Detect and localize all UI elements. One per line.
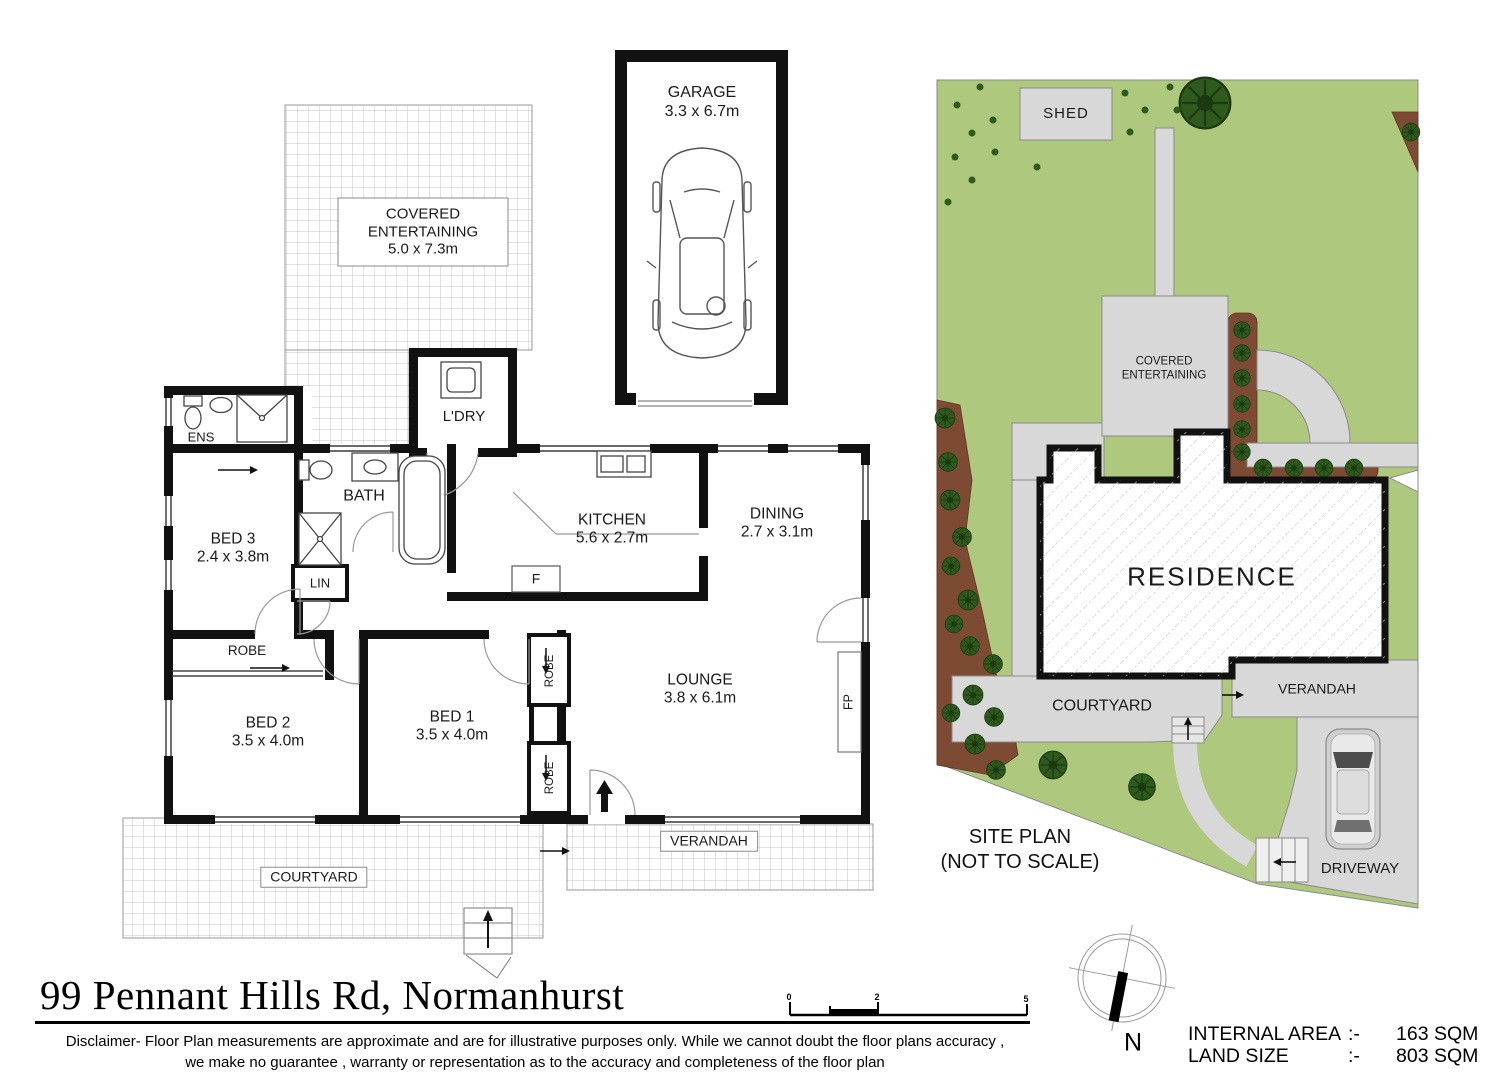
toilet-icon <box>299 460 332 480</box>
scale-tick-2: 2 <box>874 992 879 1002</box>
covered-entertaining-label: COVERED ENTERTAINING 5.0 x 7.3m <box>341 205 506 258</box>
scale-tick-0: 0 <box>786 992 791 1002</box>
lin-label: LIN <box>310 575 330 590</box>
site-residence-label: RESIDENCE <box>1127 562 1297 593</box>
verandah-label: VERANDAH <box>660 831 758 852</box>
garage-label: GARAGE 3.3 x 6.7m <box>665 84 740 122</box>
courtyard-label: COURTYARD <box>260 867 367 888</box>
internal-area-label: INTERNAL AREA <box>1188 1023 1348 1045</box>
kitchen-sink-icon <box>597 451 651 477</box>
bath-label: BATH <box>343 488 384 507</box>
laundry-tub-icon <box>441 362 481 398</box>
site-courtyard-label: COURTYARD <box>1052 698 1152 717</box>
car-icon <box>1326 729 1380 849</box>
steps-icon <box>464 908 512 978</box>
scale-tick-5: 5 <box>1023 994 1028 1004</box>
land-size-sep: :- <box>1348 1045 1396 1067</box>
site-shed-label: SHED <box>1043 105 1089 123</box>
site-verandah-label: VERANDAH <box>1278 681 1356 698</box>
bed1-label: BED 13.5 x 4.0m <box>416 709 488 746</box>
land-size-label: LAND SIZE <box>1188 1045 1348 1067</box>
page-title: 99 Pennant Hills Rd, Normanhurst <box>40 971 624 1019</box>
lounge-label: LOUNGE3.8 x 6.1m <box>664 672 736 709</box>
site-plan-caption: SITE PLAN (NOT TO SCALE) <box>941 825 1100 875</box>
vanity-icon <box>352 453 398 481</box>
scale-bar <box>790 1002 1027 1015</box>
compass-icon <box>1059 915 1186 1042</box>
fireplace-label: FP <box>842 694 857 710</box>
floorplan-page: GARAGE 3.3 x 6.7m COVERED ENTERTAINING 5… <box>0 0 1500 1082</box>
dining-label: DINING2.7 x 3.1m <box>741 506 813 543</box>
robe-bed1-top-label: ROBE <box>544 655 558 688</box>
shower-icon <box>237 395 287 442</box>
disclaimer: Disclaimer- Floor Plan measurements are … <box>35 1031 1035 1073</box>
bathtub-icon <box>399 456 445 564</box>
kitchen-label: KITCHEN5.6 x 2.7m <box>576 512 648 549</box>
site-driveway-label: DRIVEWAY <box>1321 860 1399 878</box>
title-rule <box>35 1021 1030 1024</box>
basin-icon <box>210 398 232 413</box>
fridge-label: F <box>532 571 541 588</box>
bed3-label: BED 32.4 x 3.8m <box>197 531 269 568</box>
compass-north-label: N <box>1124 1029 1142 1058</box>
internal-area-sep: :- <box>1348 1023 1396 1045</box>
internal-area-value: 163 SQM <box>1396 1023 1478 1045</box>
land-size-value: 803 SQM <box>1396 1045 1478 1067</box>
toilet-icon <box>184 396 202 429</box>
area-summary: INTERNAL AREA :- 163 SQM LAND SIZE :- 80… <box>1188 1023 1478 1067</box>
ens-label: ENS <box>188 429 215 444</box>
shower-icon <box>299 513 341 565</box>
bed2-label: BED 23.5 x 4.0m <box>232 715 304 752</box>
site-covered-entertaining-label: COVERED ENTERTAINING <box>1112 355 1217 382</box>
site-plan <box>935 78 1420 908</box>
laundry-label: L'DRY <box>443 408 486 426</box>
robe-bed1-bottom-label: ROBE <box>544 762 558 795</box>
robe-bed2-label: ROBE <box>228 643 266 659</box>
